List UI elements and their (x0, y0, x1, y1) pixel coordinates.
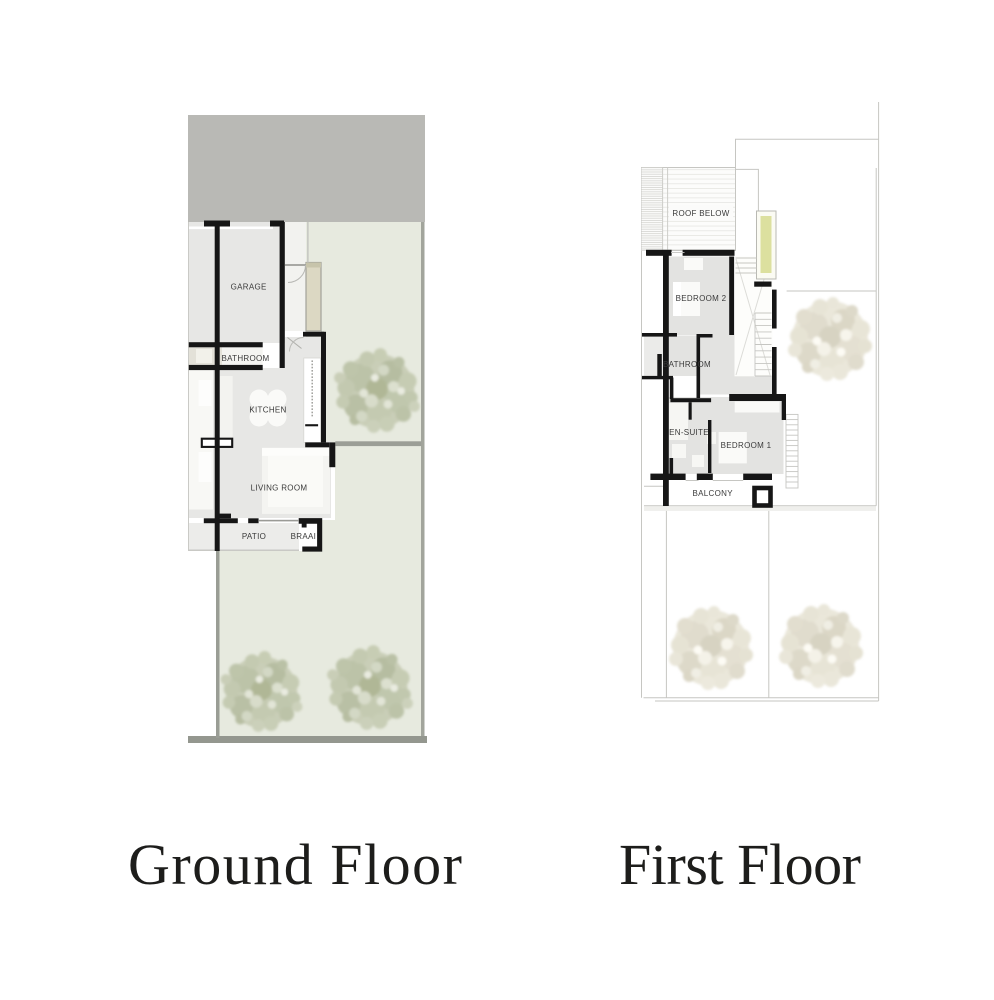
svg-text:BEDROOM 1: BEDROOM 1 (721, 441, 772, 450)
svg-text:KITCHEN: KITCHEN (249, 406, 286, 415)
svg-text:Ground Floor: Ground Floor (128, 832, 462, 897)
svg-text:BATHROOM: BATHROOM (663, 360, 711, 369)
svg-text:PATIO: PATIO (242, 532, 266, 541)
svg-text:EN-SUITE: EN-SUITE (669, 428, 709, 437)
svg-text:GARAGE: GARAGE (231, 283, 267, 292)
svg-text:BATHROOM: BATHROOM (221, 354, 269, 363)
svg-text:First Floor: First Floor (619, 832, 861, 897)
svg-text:BEDROOM 2: BEDROOM 2 (676, 294, 727, 303)
svg-text:BRAAI: BRAAI (291, 532, 317, 541)
svg-text:LIVING ROOM: LIVING ROOM (251, 484, 308, 493)
svg-text:ROOF BELOW: ROOF BELOW (672, 209, 729, 218)
svg-text:BALCONY: BALCONY (693, 489, 734, 498)
